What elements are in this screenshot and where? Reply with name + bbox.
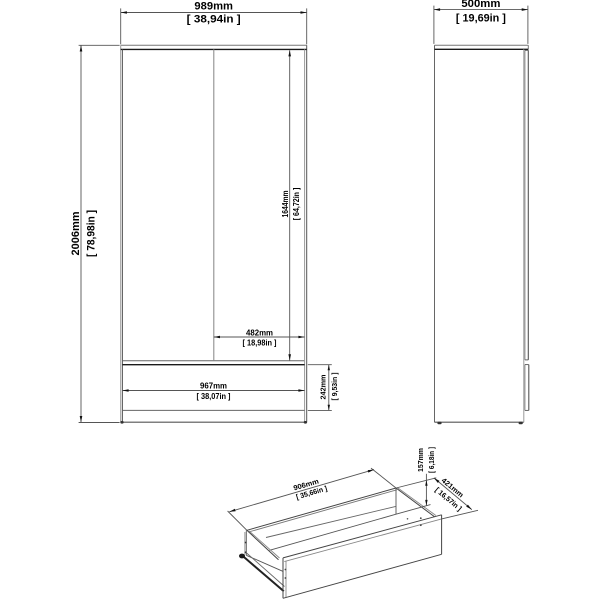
svg-text:[ 38,07in ]: [ 38,07in ] [197,392,231,401]
svg-text:[ 18,98in ]: [ 18,98in ] [243,338,277,347]
svg-text:[ 78,98in ]: [ 78,98in ] [86,210,98,257]
svg-text:[ 64,72in ]: [ 64,72in ] [292,187,301,220]
svg-text:1644mm: 1644mm [281,190,290,217]
svg-text:[ 6,18in ]: [ 6,18in ] [427,447,436,473]
svg-text:482mm: 482mm [246,329,273,338]
svg-text:[ 9,53in ]: [ 9,53in ] [330,373,339,401]
svg-text:157mm: 157mm [416,448,425,472]
svg-text:967mm: 967mm [200,381,227,390]
svg-text:2006mm: 2006mm [70,211,82,255]
svg-text:500mm: 500mm [461,0,500,10]
svg-text:[ 38,94in ]: [ 38,94in ] [187,14,241,26]
svg-text:[ 19,69in ]: [ 19,69in ] [456,12,506,24]
svg-text:989mm: 989mm [194,1,233,13]
svg-text:242mm: 242mm [319,375,328,400]
